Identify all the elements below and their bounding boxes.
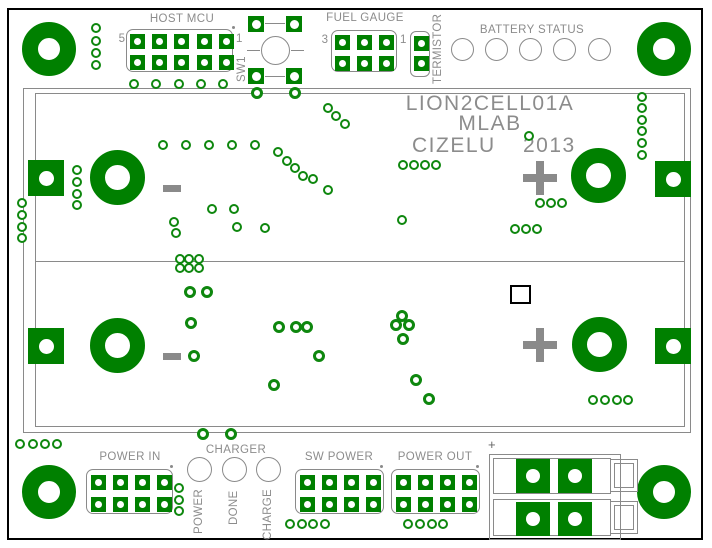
sw1-pad <box>286 68 302 84</box>
header-pad <box>462 475 477 490</box>
charger-led-done-label: DONE <box>228 487 241 525</box>
via <box>289 87 301 99</box>
via <box>40 439 50 449</box>
terminal-screw-outline <box>614 463 634 488</box>
sw1-body-line <box>247 50 260 51</box>
via <box>535 198 545 208</box>
via <box>169 217 179 227</box>
via <box>308 174 318 184</box>
battery-status-led <box>485 38 508 61</box>
header-pad <box>300 475 315 490</box>
terminal-row1-outline <box>493 458 611 494</box>
host-mcu-pin1-number: 1 <box>236 33 242 45</box>
terminal-row2-outline <box>493 499 611 536</box>
via <box>184 286 196 298</box>
via <box>557 198 567 208</box>
via <box>185 317 197 329</box>
board-subtitle: MLAB <box>390 112 590 136</box>
header-pad <box>396 475 411 490</box>
power-out-label: POWER OUT <box>375 451 495 463</box>
header-pad <box>91 497 106 512</box>
via <box>340 119 350 129</box>
cell1-minus-symbol <box>163 185 181 192</box>
via <box>600 395 610 405</box>
via <box>623 395 633 405</box>
via <box>17 233 27 243</box>
termistor-connector <box>410 31 430 77</box>
sw1-body-line <box>265 23 285 24</box>
host-mcu-pin5-number: 5 <box>109 33 125 45</box>
power-in-pin1-dot <box>170 465 173 468</box>
header-pad <box>396 497 411 512</box>
via <box>129 79 139 89</box>
via <box>151 79 161 89</box>
header-pad <box>152 34 167 49</box>
header-pad <box>414 36 429 51</box>
via <box>420 160 430 170</box>
cell2-minus-symbol <box>163 353 181 360</box>
via <box>521 224 531 234</box>
cell2-left-tab-pad <box>28 328 64 364</box>
via <box>612 395 622 405</box>
cell2-plus-symbol-h <box>523 341 557 349</box>
header-pad <box>219 34 234 49</box>
mounting-hole-bottom-right <box>637 465 691 519</box>
via <box>17 198 27 208</box>
via <box>331 111 341 121</box>
via <box>268 379 280 391</box>
via <box>313 350 325 362</box>
header-pad <box>379 35 394 50</box>
header-pad <box>197 55 212 70</box>
sw1-body-line <box>265 76 285 77</box>
cell1-right-tab-pad <box>655 161 691 197</box>
header-pad <box>322 475 337 490</box>
pcb-layout: LION2CELL01A MLAB CIZELU 2013 HOST MCU 5… <box>0 0 712 548</box>
via <box>196 79 206 89</box>
power-in-header <box>86 469 173 514</box>
via <box>637 138 647 148</box>
via <box>588 395 598 405</box>
component-outline-square <box>510 285 531 304</box>
termistor-label: TERMISTOR <box>432 12 446 84</box>
via <box>91 48 101 58</box>
mounting-hole-top-left <box>22 22 76 76</box>
via <box>273 321 285 333</box>
fuel-gauge-pin1-number: 1 <box>400 34 406 46</box>
via <box>390 319 402 331</box>
via <box>15 439 25 449</box>
sw1-body-line <box>291 50 304 51</box>
header-pad <box>135 497 150 512</box>
via <box>510 224 520 234</box>
battery-status-led <box>553 38 576 61</box>
via <box>320 519 330 529</box>
header-pad <box>157 475 172 490</box>
header-pad <box>335 56 350 71</box>
via <box>158 140 168 150</box>
cell1-positive-pad <box>571 148 626 203</box>
sw1-pad <box>248 68 264 84</box>
fuel-gauge-header <box>331 30 397 72</box>
battery-status-label: BATTERY STATUS <box>452 24 612 36</box>
via <box>52 439 62 449</box>
via <box>410 374 422 386</box>
via <box>184 263 194 273</box>
via <box>72 177 82 187</box>
charger-led-charge <box>256 457 281 482</box>
via <box>285 519 295 529</box>
terminal-pad <box>558 502 592 536</box>
header-pad <box>440 497 455 512</box>
via <box>415 519 425 529</box>
via <box>91 60 101 70</box>
cell2-positive-pad <box>572 317 627 372</box>
via <box>188 350 200 362</box>
via <box>637 126 647 136</box>
via <box>72 165 82 175</box>
header-pad <box>366 475 381 490</box>
header-pad <box>174 34 189 49</box>
via <box>232 222 242 232</box>
header-pad <box>152 55 167 70</box>
via <box>409 160 419 170</box>
header-pad <box>440 475 455 490</box>
charger-label: CHARGER <box>176 444 296 456</box>
header-pad <box>322 497 337 512</box>
via <box>197 428 209 440</box>
header-pad <box>357 35 372 50</box>
via <box>225 428 237 440</box>
via <box>91 36 101 46</box>
battery-status-led <box>588 38 611 61</box>
via <box>637 92 647 102</box>
via <box>397 215 407 225</box>
header-pad <box>344 475 359 490</box>
battery-holder-outline-inner <box>35 93 685 427</box>
via <box>397 333 409 345</box>
cell-divider-line <box>35 261 685 262</box>
header-pad <box>418 475 433 490</box>
via <box>72 200 82 210</box>
header-pad <box>130 34 145 49</box>
host-mcu-label: HOST MCU <box>122 13 242 25</box>
sw1-pad <box>248 16 264 32</box>
power-out-header <box>391 469 480 514</box>
via <box>72 189 82 199</box>
header-pad <box>174 55 189 70</box>
via <box>524 131 534 141</box>
header-pad <box>344 497 359 512</box>
header-pad <box>418 497 433 512</box>
via <box>637 115 647 125</box>
via <box>91 23 101 33</box>
header-pad <box>219 55 234 70</box>
cell1-plus-symbol-h <box>523 174 557 182</box>
via <box>260 223 270 233</box>
via <box>403 319 415 331</box>
charger-led-charge-label: CHARGE <box>262 487 275 540</box>
via <box>207 204 217 214</box>
via <box>427 519 437 529</box>
host-mcu-pin1-dot <box>232 26 235 29</box>
header-pad <box>414 56 429 71</box>
via <box>227 140 237 150</box>
via <box>174 506 184 516</box>
header-pad <box>130 55 145 70</box>
header-pad <box>113 475 128 490</box>
via <box>204 140 214 150</box>
mounting-hole-bottom-left <box>22 465 76 519</box>
battery-status-led <box>451 38 474 61</box>
cell1-left-tab-pad <box>28 160 64 196</box>
via <box>250 140 260 150</box>
cell2-negative-pad <box>90 318 145 373</box>
via <box>181 140 191 150</box>
power-out-pin1-dot <box>476 465 479 468</box>
via <box>308 519 318 529</box>
sw1-button-outline <box>261 36 290 65</box>
via <box>403 519 413 529</box>
via <box>546 198 556 208</box>
board-author: CIZELU <box>412 134 496 158</box>
via <box>398 160 408 170</box>
power-in-label: POWER IN <box>70 451 190 463</box>
sw-power-header <box>295 469 384 514</box>
header-pad <box>357 56 372 71</box>
via <box>28 439 38 449</box>
fuel-gauge-pin3-number: 3 <box>312 34 328 46</box>
header-pad <box>300 497 315 512</box>
mounting-hole-top-right <box>637 22 691 76</box>
terminal-pad <box>558 459 592 493</box>
header-pad <box>91 475 106 490</box>
via <box>323 185 333 195</box>
via <box>301 321 313 333</box>
via <box>637 150 647 160</box>
via <box>431 160 441 170</box>
charger-led-power-label: POWER <box>193 487 206 534</box>
via <box>174 495 184 505</box>
sw1-pad <box>286 16 302 32</box>
via <box>218 79 228 89</box>
host-mcu-header <box>126 29 233 72</box>
header-pad <box>366 497 381 512</box>
charger-led-power <box>187 457 212 482</box>
header-pad <box>379 56 394 71</box>
via <box>171 228 181 238</box>
via <box>174 79 184 89</box>
via <box>273 147 283 157</box>
via <box>17 222 27 232</box>
via <box>229 204 239 214</box>
header-pad <box>197 34 212 49</box>
via <box>17 210 27 220</box>
header-pad <box>335 35 350 50</box>
via <box>423 393 435 405</box>
terminal-plus-label: + <box>488 437 496 452</box>
via <box>298 171 308 181</box>
header-pad <box>135 475 150 490</box>
via <box>174 483 184 493</box>
terminal-pad <box>516 502 550 536</box>
via <box>251 87 263 99</box>
via <box>297 519 307 529</box>
terminal-pad <box>516 459 550 493</box>
battery-status-led <box>519 38 542 61</box>
via <box>532 224 542 234</box>
header-pad <box>462 497 477 512</box>
terminal-screw-outline <box>614 505 634 530</box>
cell2-right-tab-pad <box>655 328 691 364</box>
header-pad <box>157 497 172 512</box>
via <box>201 286 213 298</box>
via <box>438 519 448 529</box>
cell1-negative-pad <box>90 150 145 205</box>
via <box>637 103 647 113</box>
sw-power-pin1-dot <box>380 465 383 468</box>
charger-led-done <box>222 457 247 482</box>
header-pad <box>113 497 128 512</box>
fuel-gauge-label: FUEL GAUGE <box>305 12 425 24</box>
via <box>194 263 204 273</box>
